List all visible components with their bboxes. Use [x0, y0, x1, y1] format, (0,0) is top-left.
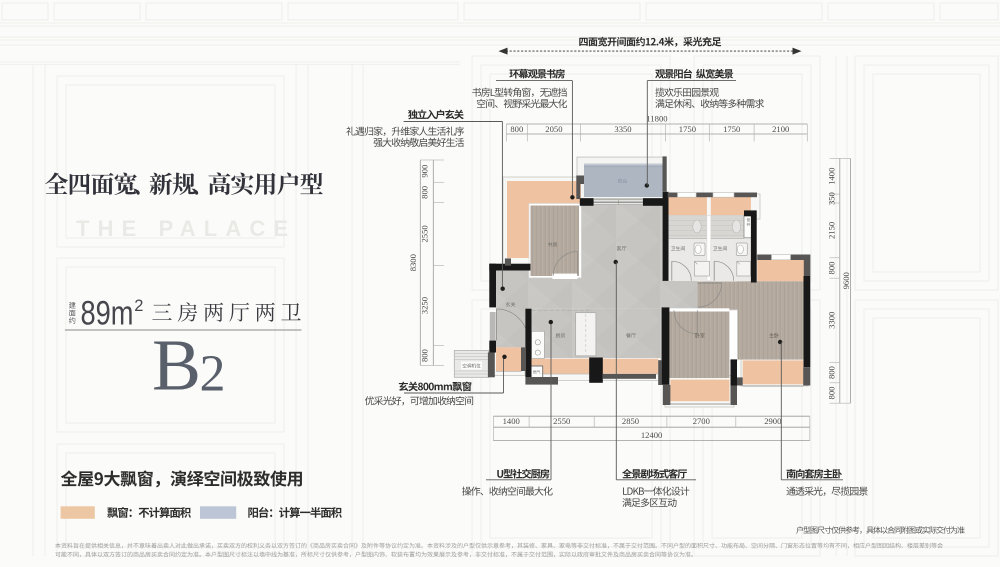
svg-text:800: 800 — [420, 349, 430, 362]
svg-text:2150: 2150 — [827, 222, 837, 239]
svg-text:2900: 2900 — [764, 416, 781, 426]
svg-text:8300: 8300 — [408, 254, 418, 271]
svg-text:3350: 3350 — [614, 124, 631, 134]
svg-text:2850: 2850 — [622, 416, 639, 426]
svg-text:2550: 2550 — [553, 416, 570, 426]
svg-text:2100: 2100 — [772, 124, 789, 134]
svg-text:2: 2 — [200, 346, 226, 403]
svg-text:THE PALACE: THE PALACE — [76, 216, 288, 241]
svg-text:800: 800 — [510, 124, 523, 134]
svg-text:11800: 11800 — [646, 114, 667, 124]
svg-text:3300: 3300 — [827, 312, 837, 329]
svg-text:9600: 9600 — [841, 272, 851, 289]
svg-text:1400: 1400 — [503, 416, 520, 426]
svg-text:1400: 1400 — [827, 168, 837, 185]
svg-text:B: B — [152, 324, 201, 405]
svg-text:12400: 12400 — [641, 430, 662, 440]
svg-text:89m: 89m — [81, 294, 134, 332]
svg-text:2050: 2050 — [545, 124, 562, 134]
svg-text:800: 800 — [827, 366, 837, 379]
svg-text:1750: 1750 — [723, 124, 740, 134]
svg-text:2: 2 — [134, 297, 143, 315]
svg-text:900: 900 — [420, 165, 430, 178]
svg-text:800: 800 — [420, 186, 430, 199]
svg-text:2700: 2700 — [693, 416, 710, 426]
svg-text:1750: 1750 — [679, 124, 696, 134]
svg-text:800: 800 — [827, 387, 837, 400]
svg-text:2550: 2550 — [420, 225, 430, 242]
svg-text:800: 800 — [827, 262, 837, 275]
svg-text:350: 350 — [827, 192, 837, 205]
svg-text:3250: 3250 — [420, 297, 430, 314]
